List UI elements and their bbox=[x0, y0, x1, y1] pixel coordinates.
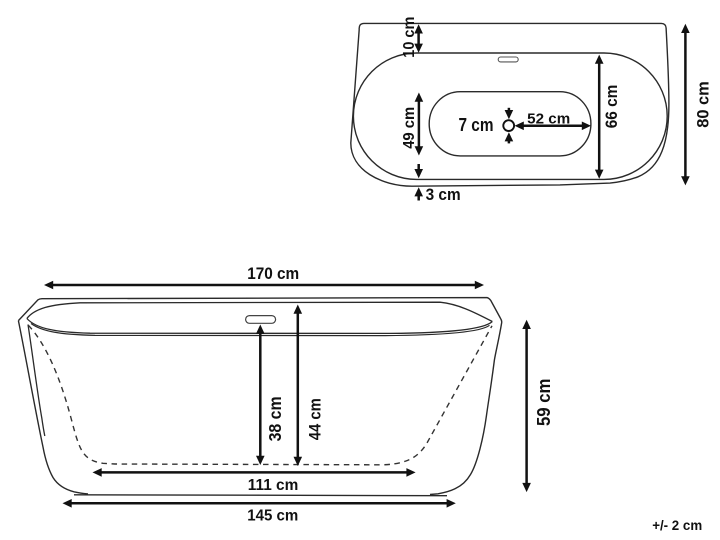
svg-text:3 cm: 3 cm bbox=[426, 185, 461, 204]
svg-text:80 cm: 80 cm bbox=[694, 81, 713, 128]
svg-text:38 cm: 38 cm bbox=[265, 396, 285, 441]
svg-text:111 cm: 111 cm bbox=[248, 477, 298, 494]
svg-text:52 cm: 52 cm bbox=[527, 110, 570, 127]
svg-text:170 cm: 170 cm bbox=[247, 265, 299, 283]
svg-text:66 cm: 66 cm bbox=[603, 85, 621, 129]
svg-text:+/- 2 cm: +/- 2 cm bbox=[652, 517, 702, 533]
svg-text:7 cm: 7 cm bbox=[459, 115, 494, 135]
svg-text:10 cm: 10 cm bbox=[401, 17, 418, 58]
svg-text:59 cm: 59 cm bbox=[534, 379, 554, 427]
svg-text:145 cm: 145 cm bbox=[247, 507, 298, 524]
svg-text:49 cm: 49 cm bbox=[401, 107, 418, 149]
svg-text:44 cm: 44 cm bbox=[306, 398, 325, 440]
